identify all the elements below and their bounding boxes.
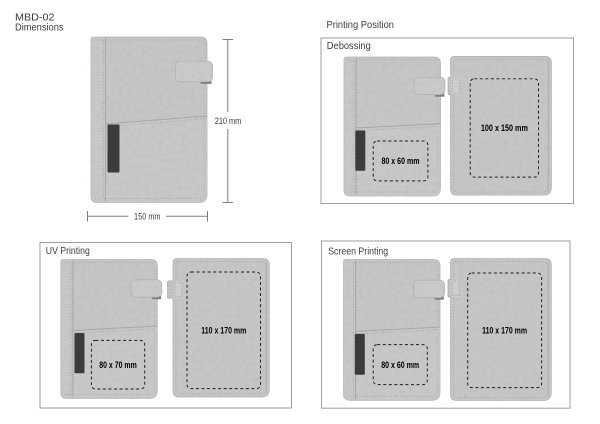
svg-text:Dimensions: Dimensions xyxy=(15,22,64,34)
svg-text:UV Printing: UV Printing xyxy=(46,246,90,257)
svg-text:110 x 170 mm: 110 x 170 mm xyxy=(201,326,246,337)
svg-text:80 x 70 mm: 80 x 70 mm xyxy=(99,360,137,371)
svg-text:Printing Position: Printing Position xyxy=(327,19,395,31)
svg-text:80 x 60 mm: 80 x 60 mm xyxy=(382,156,420,167)
svg-text:110 x 170 mm: 110 x 170 mm xyxy=(482,326,527,337)
svg-text:210 mm: 210 mm xyxy=(215,116,242,126)
svg-text:Screen Printing: Screen Printing xyxy=(328,246,388,257)
svg-text:150 mm: 150 mm xyxy=(134,211,161,221)
svg-text:100 x 150 mm: 100 x 150 mm xyxy=(481,123,528,134)
svg-text:80 x 60 mm: 80 x 60 mm xyxy=(381,360,419,371)
svg-text:Debossing: Debossing xyxy=(327,41,371,52)
